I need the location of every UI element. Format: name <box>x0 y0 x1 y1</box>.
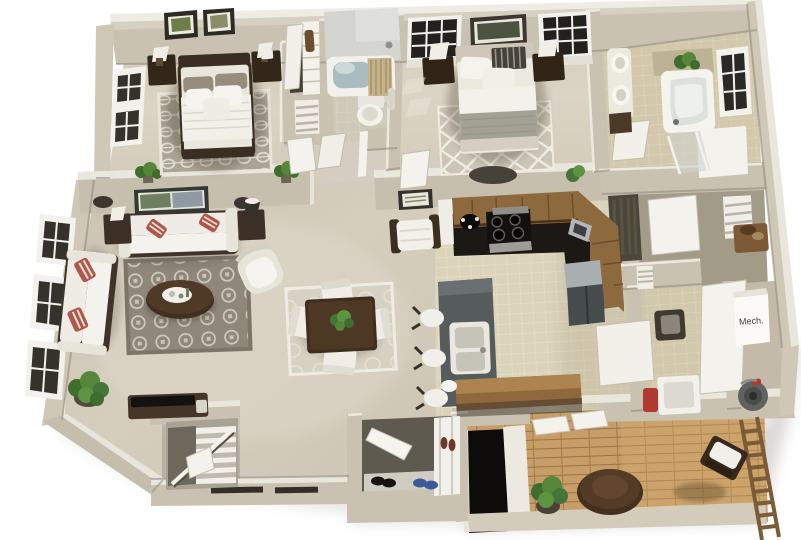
svg-text:Mech.: Mech. <box>739 315 764 327</box>
